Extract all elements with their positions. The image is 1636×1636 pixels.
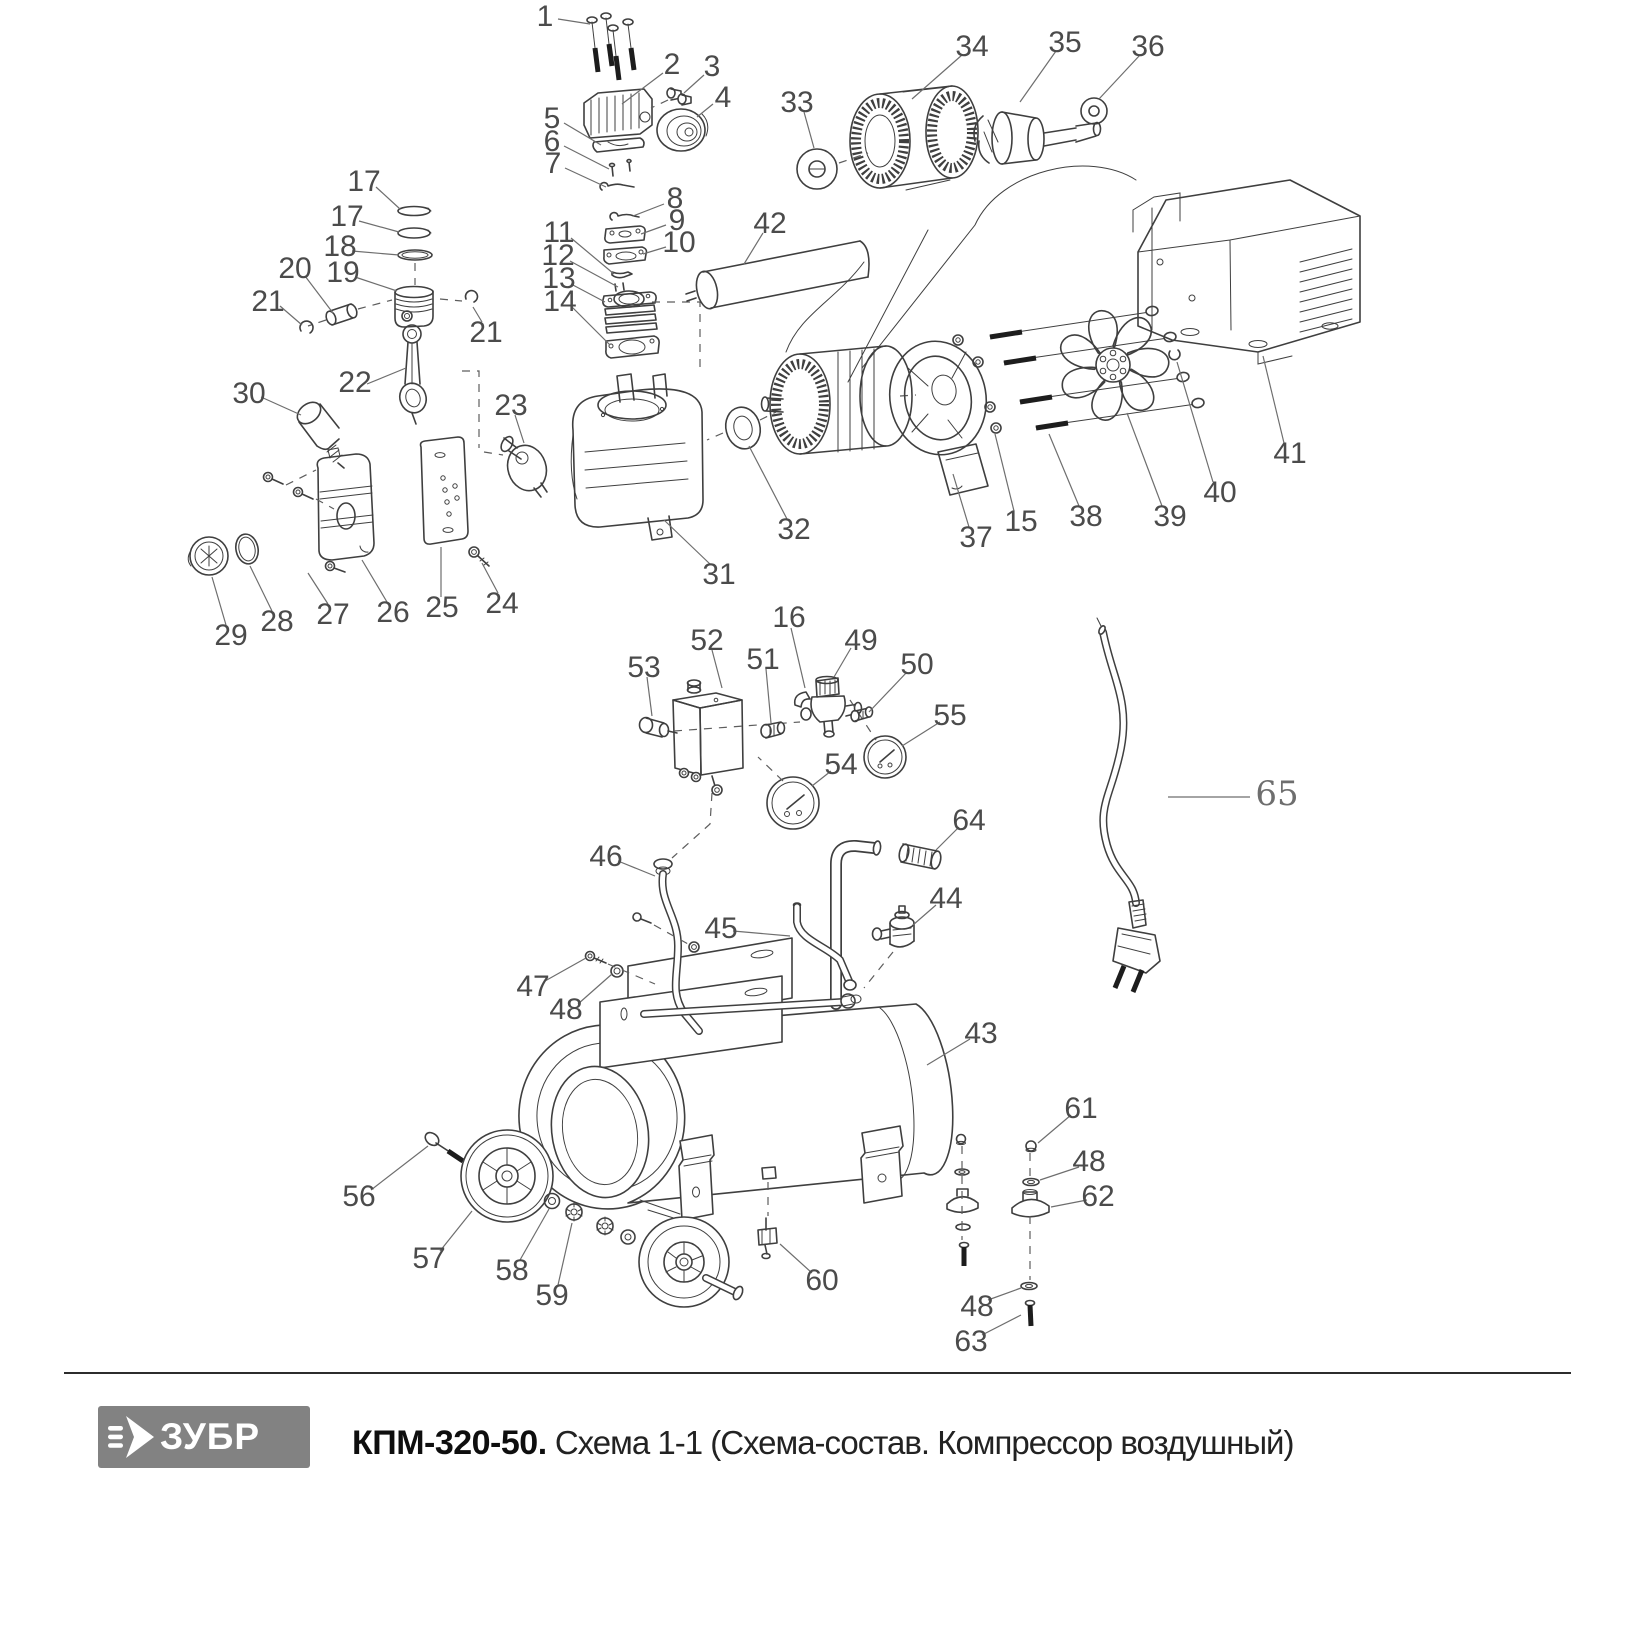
callout-4: 4: [715, 81, 732, 114]
callout-44: 44: [929, 882, 962, 915]
callout-41: 41: [1273, 437, 1306, 470]
callout-51: 51: [746, 643, 779, 676]
callout-59: 59: [535, 1279, 568, 1312]
piston-pin: [308, 300, 392, 326]
callout-63: 63: [954, 1325, 987, 1358]
callout-61: 61: [1064, 1092, 1097, 1125]
callout-37: 37: [959, 521, 992, 554]
bearing-33: [797, 149, 868, 189]
leader-line-51: [766, 669, 771, 723]
callout-1: 1: [537, 0, 554, 33]
reed-valve-lower: [610, 213, 639, 220]
circlips: [300, 291, 477, 333]
callout-15: 15: [1004, 505, 1037, 538]
leader-line-38: [1049, 434, 1079, 506]
foot-right-stack: [1012, 1141, 1049, 1326]
callout-49: 49: [844, 624, 877, 657]
cover-plate: [421, 437, 469, 544]
crankcase-cover: [317, 448, 374, 560]
callout-38: 38: [1069, 500, 1102, 533]
wheel-bracket-right: [861, 1126, 903, 1203]
leader-line-59: [558, 1223, 572, 1285]
callout-46: 46: [589, 840, 622, 873]
leader-line-37: [953, 474, 969, 527]
callout-10: 10: [662, 226, 695, 259]
callout-33: 33: [780, 86, 813, 119]
connecting-rod: [396, 325, 430, 424]
valve-plate: [605, 226, 645, 243]
fitting-51: [761, 722, 785, 738]
cylinder-head: [584, 89, 652, 138]
leader-line-32: [749, 446, 787, 519]
callout-52: 52: [690, 624, 723, 657]
exploded-diagram: 1234567891011121314171718192021212223242…: [0, 0, 1636, 1636]
schematic-page: 1234567891011121314171718192021212223242…: [0, 0, 1636, 1636]
piston: [395, 287, 433, 328]
callout-21: 21: [251, 285, 284, 318]
sight-glass-ring: [233, 532, 261, 566]
footer-title: КПМ-320-50. Схема 1-1 (Схема-состав. Ком…: [352, 1424, 1293, 1463]
regulator-lever: [795, 692, 810, 707]
callout-30: 30: [232, 377, 265, 410]
callout-24: 24: [485, 587, 518, 620]
leader-line-47: [545, 958, 586, 981]
leader-line-45: [733, 931, 790, 936]
fan-circlip: [1169, 350, 1180, 360]
leader-line-30: [261, 397, 301, 415]
leader-line-17: [359, 221, 399, 232]
safety-valve: [640, 718, 801, 738]
callout-53: 53: [627, 651, 660, 684]
footer-divider: [64, 1372, 1571, 1374]
stator: [850, 86, 978, 190]
leader-line-16: [791, 628, 805, 688]
leader-line-56: [371, 1146, 428, 1190]
callout-20: 20: [278, 252, 311, 285]
leader-line-4: [697, 104, 713, 117]
breather: [293, 398, 344, 468]
callout-19: 19: [326, 256, 359, 289]
callout-7: 7: [545, 147, 562, 180]
leader-line-48: [578, 974, 612, 1004]
cylinder-gasket: [606, 336, 659, 358]
cover-bolt: [469, 547, 489, 566]
leader-line-5: [564, 123, 601, 145]
air-filter: [657, 109, 708, 151]
callout-48: 48: [549, 993, 582, 1026]
valve-screws: [610, 160, 632, 176]
gauge-54: [758, 757, 819, 829]
callout-48: 48: [960, 1290, 993, 1323]
piston-rings: [398, 207, 432, 286]
leader-line-14: [572, 307, 610, 345]
wheel-mounted-small: [639, 1217, 745, 1307]
brand-logo-icon: [98, 1406, 160, 1468]
callout-14: 14: [543, 285, 576, 318]
callout-39: 39: [1153, 500, 1186, 533]
callout-17: 17: [330, 200, 363, 233]
gauge-55: [864, 736, 906, 778]
callout-54: 54: [824, 748, 857, 781]
leader-line-15: [995, 434, 1014, 511]
wheel-nut-2: [597, 1217, 635, 1244]
wheel: [461, 1130, 553, 1222]
leader-line-7: [565, 168, 606, 187]
leader-line-2: [622, 73, 663, 104]
callout-62: 62: [1081, 1180, 1114, 1213]
callout-64: 64: [952, 804, 985, 837]
brand-logo-text: ЗУБР: [160, 1406, 260, 1468]
callout-26: 26: [376, 596, 409, 629]
leader-line-12: [570, 261, 618, 287]
rotor: [974, 112, 1101, 164]
callout-40: 40: [1203, 476, 1236, 509]
valve-pins: [612, 272, 632, 291]
drain-valve: [758, 1218, 777, 1259]
bearing-36: [1081, 98, 1107, 124]
callout-48: 48: [1072, 1145, 1105, 1178]
callout-3: 3: [704, 50, 721, 83]
leader-line-6: [564, 146, 609, 169]
callout-35: 35: [1048, 26, 1081, 59]
callout-36: 36: [1131, 30, 1164, 63]
handle: [836, 841, 881, 1004]
callout-21: 21: [469, 316, 502, 349]
check-valve: [864, 906, 914, 988]
wheel-washer: [545, 1194, 560, 1209]
handle-grip: [898, 843, 943, 869]
model-number: КПМ-320-50.: [352, 1424, 547, 1462]
callout-60: 60: [805, 1264, 838, 1297]
callout-43: 43: [964, 1017, 997, 1050]
leader-line-18: [352, 251, 399, 255]
outlet-pipe: [794, 903, 857, 990]
leader-line-22: [367, 368, 406, 384]
callout-31: 31: [702, 558, 735, 591]
leader-line-8: [633, 204, 664, 216]
pressure-switch: [672, 680, 743, 858]
callout-17: 17: [347, 165, 380, 198]
leader-line-29: [212, 577, 226, 625]
callout-57: 57: [412, 1242, 445, 1275]
wheel-nut: [566, 1203, 582, 1221]
callout-50: 50: [900, 648, 933, 681]
callout-25: 25: [425, 591, 458, 624]
callout-34: 34: [955, 30, 988, 63]
cylinder: [603, 291, 657, 333]
leader-line-40: [1177, 362, 1213, 482]
leader-line-3: [684, 75, 704, 93]
leader-line-19: [355, 277, 397, 291]
leader-line-46: [618, 861, 655, 876]
callout-45: 45: [704, 912, 737, 945]
callout-42: 42: [753, 207, 786, 240]
regulator: [795, 677, 876, 741]
callout-23: 23: [494, 389, 527, 422]
callout-65: 65: [1255, 774, 1298, 814]
callout-32: 32: [777, 513, 810, 546]
head-fittings: [651, 88, 691, 108]
leader-line-1: [558, 19, 590, 24]
brand-logo: ЗУБР: [98, 1406, 310, 1468]
motor-assembled: [762, 166, 1137, 454]
callout-27: 27: [316, 598, 349, 631]
callout-47: 47: [516, 970, 549, 1003]
cover-screws: [264, 470, 346, 572]
head-bolts: [587, 13, 634, 80]
leader-line-41: [1263, 356, 1284, 443]
scheme-title: Схема 1-1 (Схема-состав. Компрессор возд…: [547, 1424, 1294, 1461]
callout-22: 22: [338, 366, 371, 399]
leader-line-39: [1127, 413, 1162, 506]
callout-16: 16: [772, 601, 805, 634]
callout-28: 28: [260, 605, 293, 638]
callout-58: 58: [495, 1254, 528, 1287]
callout-56: 56: [342, 1180, 375, 1213]
valve-gasket: [604, 247, 647, 264]
foot-left-stack: [947, 1135, 978, 1267]
callout-29: 29: [214, 619, 247, 652]
callout-55: 55: [933, 699, 966, 732]
callout-2: 2: [664, 48, 681, 81]
capacitor: [686, 241, 869, 352]
power-cord: [1097, 618, 1160, 992]
oil-plug: [188, 537, 228, 575]
